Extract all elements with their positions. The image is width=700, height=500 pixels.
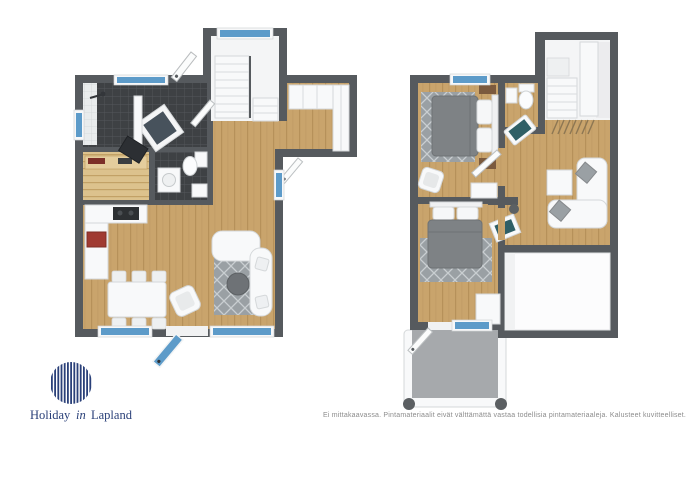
balcony-door-opening bbox=[428, 322, 454, 330]
balcony-post bbox=[495, 398, 507, 410]
dining-chairs-top bbox=[112, 271, 166, 282]
coffee-table bbox=[227, 273, 249, 295]
logo-text-lapland: Lapland bbox=[91, 408, 133, 422]
pillow bbox=[477, 128, 492, 152]
wardrobe bbox=[476, 294, 500, 324]
patio-door-opening bbox=[166, 326, 208, 336]
dresser bbox=[471, 183, 497, 198]
ground-floor-plan bbox=[74, 28, 357, 367]
dining-table bbox=[108, 282, 166, 317]
pillow bbox=[433, 207, 454, 220]
logo-text-holiday: Holiday bbox=[30, 408, 71, 422]
brand-logo: Holiday in Lapland bbox=[30, 362, 133, 422]
window bbox=[274, 170, 284, 200]
sauna-headrest bbox=[88, 158, 105, 164]
disclaimer-text: Ei mittakaavassa. Pintamateriaalit eivät… bbox=[323, 412, 686, 419]
window bbox=[98, 326, 152, 337]
upper-floor-plan bbox=[403, 32, 618, 410]
floor-plan-page: Holiday in Lapland Ei mittakaavassa. Pin… bbox=[0, 0, 700, 500]
pillow bbox=[477, 100, 492, 124]
window bbox=[74, 110, 84, 140]
floor-plans-graphic: Holiday in Lapland bbox=[0, 0, 700, 500]
bathroom-partition-wall bbox=[134, 96, 142, 146]
wc-sink bbox=[192, 184, 207, 197]
desk-stool bbox=[509, 204, 519, 214]
washing-machine bbox=[158, 168, 180, 192]
window bbox=[217, 28, 273, 39]
window bbox=[450, 74, 490, 85]
burner bbox=[129, 211, 134, 216]
window bbox=[452, 320, 492, 331]
staircase bbox=[215, 56, 250, 118]
upper-toilet bbox=[519, 84, 534, 109]
nightstand bbox=[479, 85, 496, 94]
sofa-pillow bbox=[255, 257, 270, 272]
window bbox=[114, 75, 168, 85]
burner bbox=[118, 211, 123, 216]
hall-shelf bbox=[253, 98, 278, 121]
headboard bbox=[430, 202, 482, 207]
balcony-post bbox=[403, 398, 415, 410]
sofa-pillow bbox=[255, 295, 269, 309]
brand-logo-icon bbox=[51, 362, 91, 404]
headboard bbox=[492, 95, 498, 157]
bedroom2-door-opening bbox=[498, 208, 505, 240]
bathroom-tiled-wall bbox=[83, 83, 97, 145]
cooktop bbox=[113, 207, 139, 220]
pillow bbox=[457, 207, 478, 220]
logo-text-in: in bbox=[76, 408, 86, 422]
hall-connector-floor bbox=[275, 121, 287, 149]
window bbox=[210, 326, 274, 337]
oven bbox=[87, 232, 106, 247]
cube-table bbox=[547, 170, 572, 195]
upper-wc-sink bbox=[506, 88, 517, 103]
sauna-headrest bbox=[118, 158, 132, 164]
patio-door-open bbox=[153, 334, 183, 367]
void-opening bbox=[505, 253, 610, 330]
